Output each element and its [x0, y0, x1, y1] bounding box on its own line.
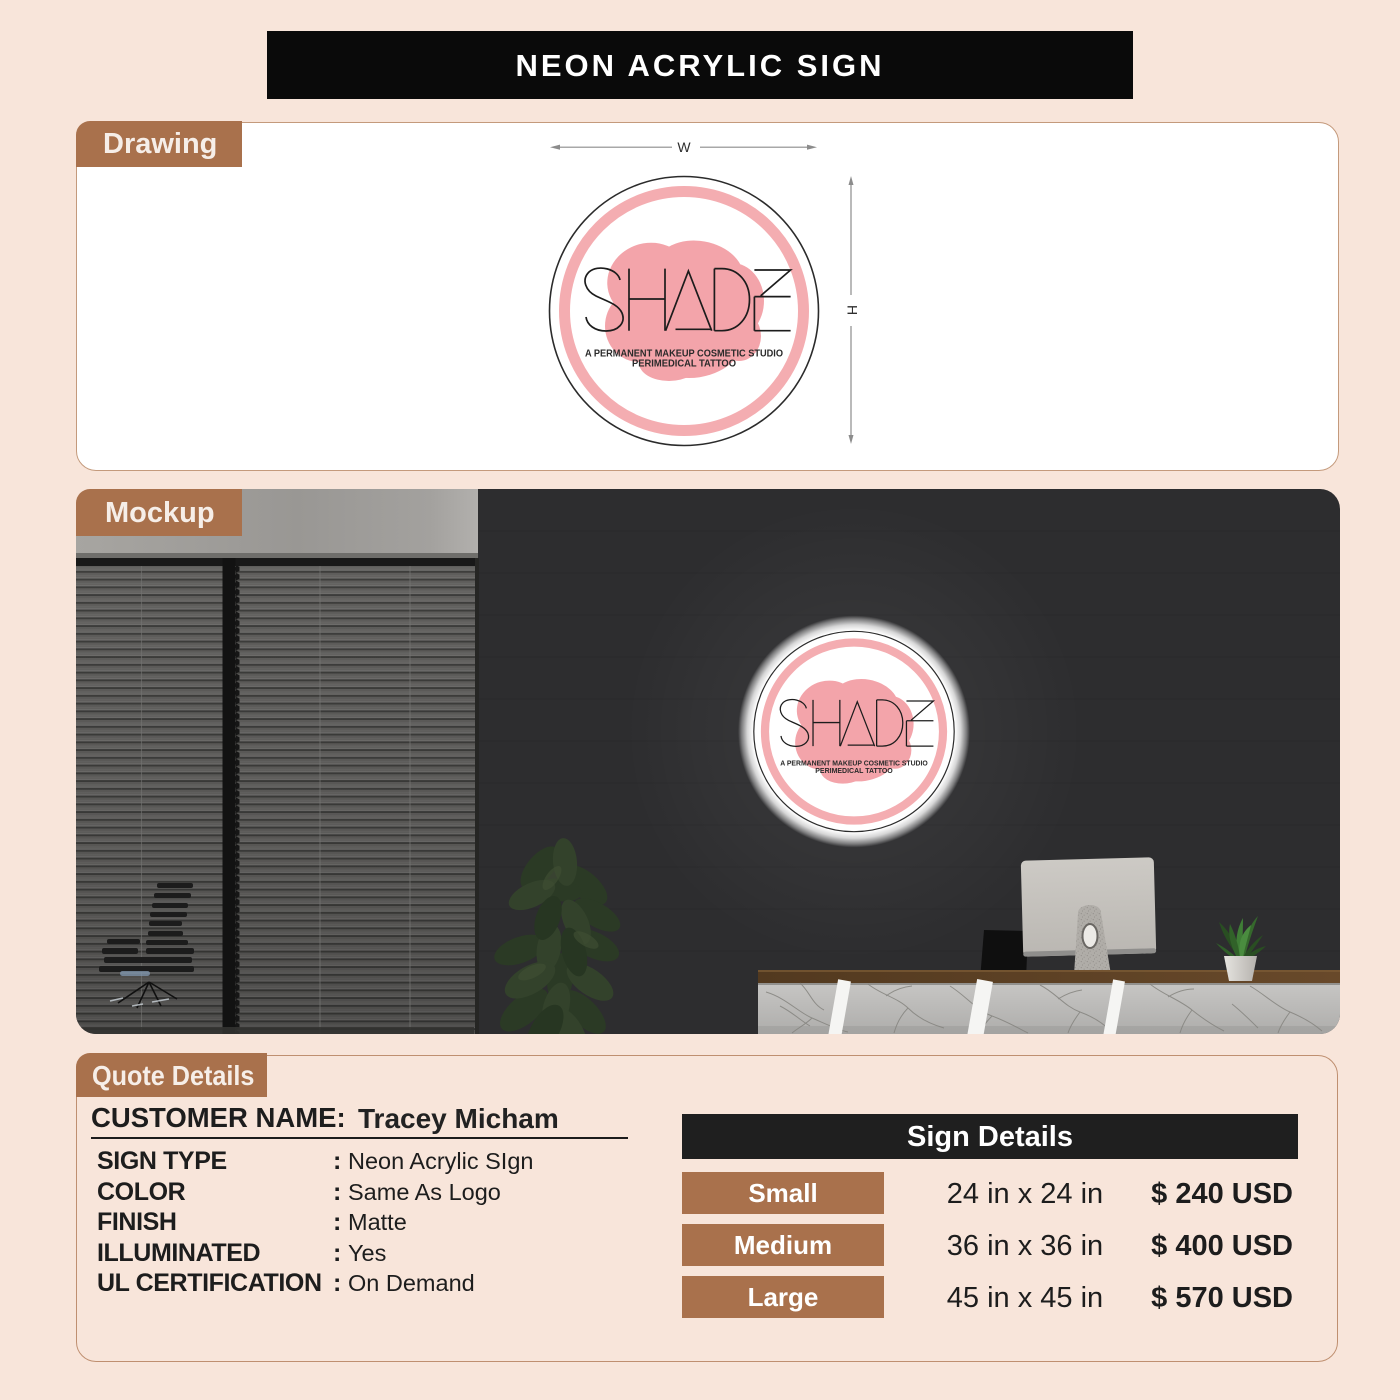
svg-text:W: W — [677, 139, 691, 155]
svg-text:H: H — [845, 305, 861, 315]
